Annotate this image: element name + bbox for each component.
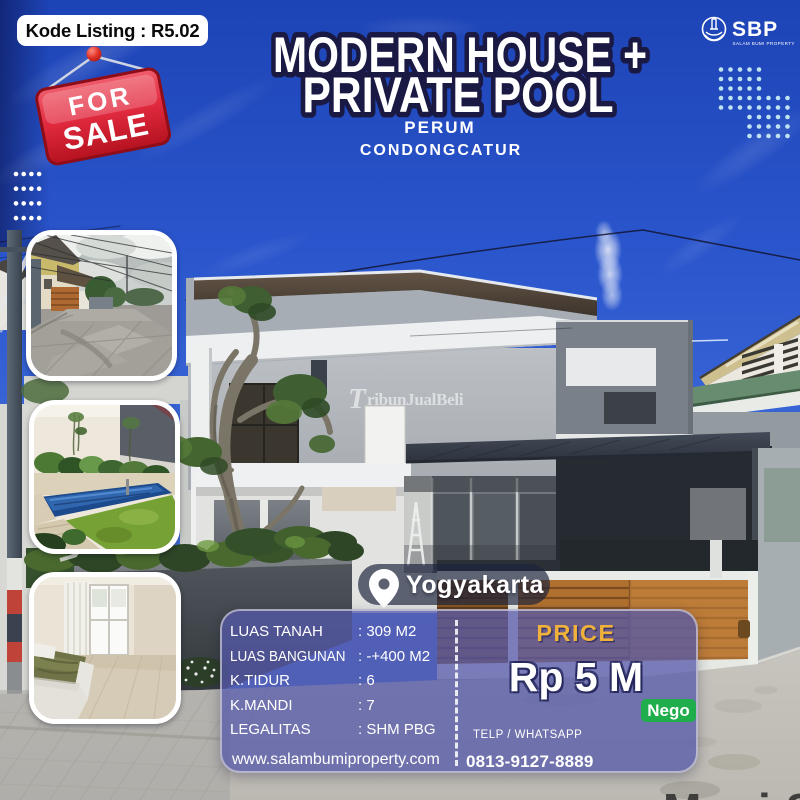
svg-text:T: T xyxy=(348,383,367,415)
svg-text:PERUM: PERUM xyxy=(404,118,475,137)
svg-text:SALAM BUMI PROPERTY: SALAM BUMI PROPERTY xyxy=(733,41,795,46)
svg-text:PRIVATE POOL: PRIVATE POOL xyxy=(303,67,614,123)
svg-text:SBP: SBP xyxy=(732,18,778,41)
svg-text:ribunJualBeli: ribunJualBeli xyxy=(367,390,464,409)
svg-text:CONDONGCATUR: CONDONGCATUR xyxy=(360,142,522,159)
svg-text:Musi Stu: Musi Stu xyxy=(663,784,800,800)
